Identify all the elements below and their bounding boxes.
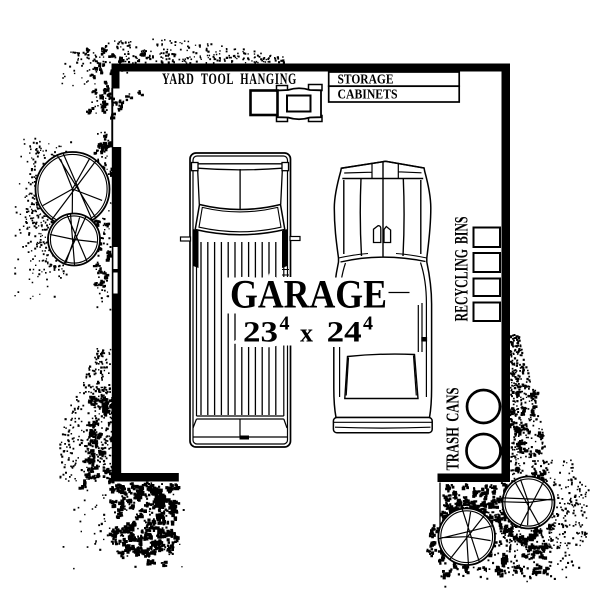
svg-text:STORAGE: STORAGE [338,73,394,88]
svg-text:CABINETS: CABINETS [338,88,398,103]
svg-text:RECYCLING BINS: RECYCLING BINS [452,217,473,322]
svg-text:TRASH CANS: TRASH CANS [443,388,463,471]
svg-text:24: 24 [327,316,362,349]
svg-text:4: 4 [280,313,290,335]
svg-text:x: x [300,319,313,348]
svg-text:4: 4 [363,313,373,335]
svg-text:GARAGE: GARAGE [230,272,387,317]
svg-text:23: 23 [243,316,278,349]
